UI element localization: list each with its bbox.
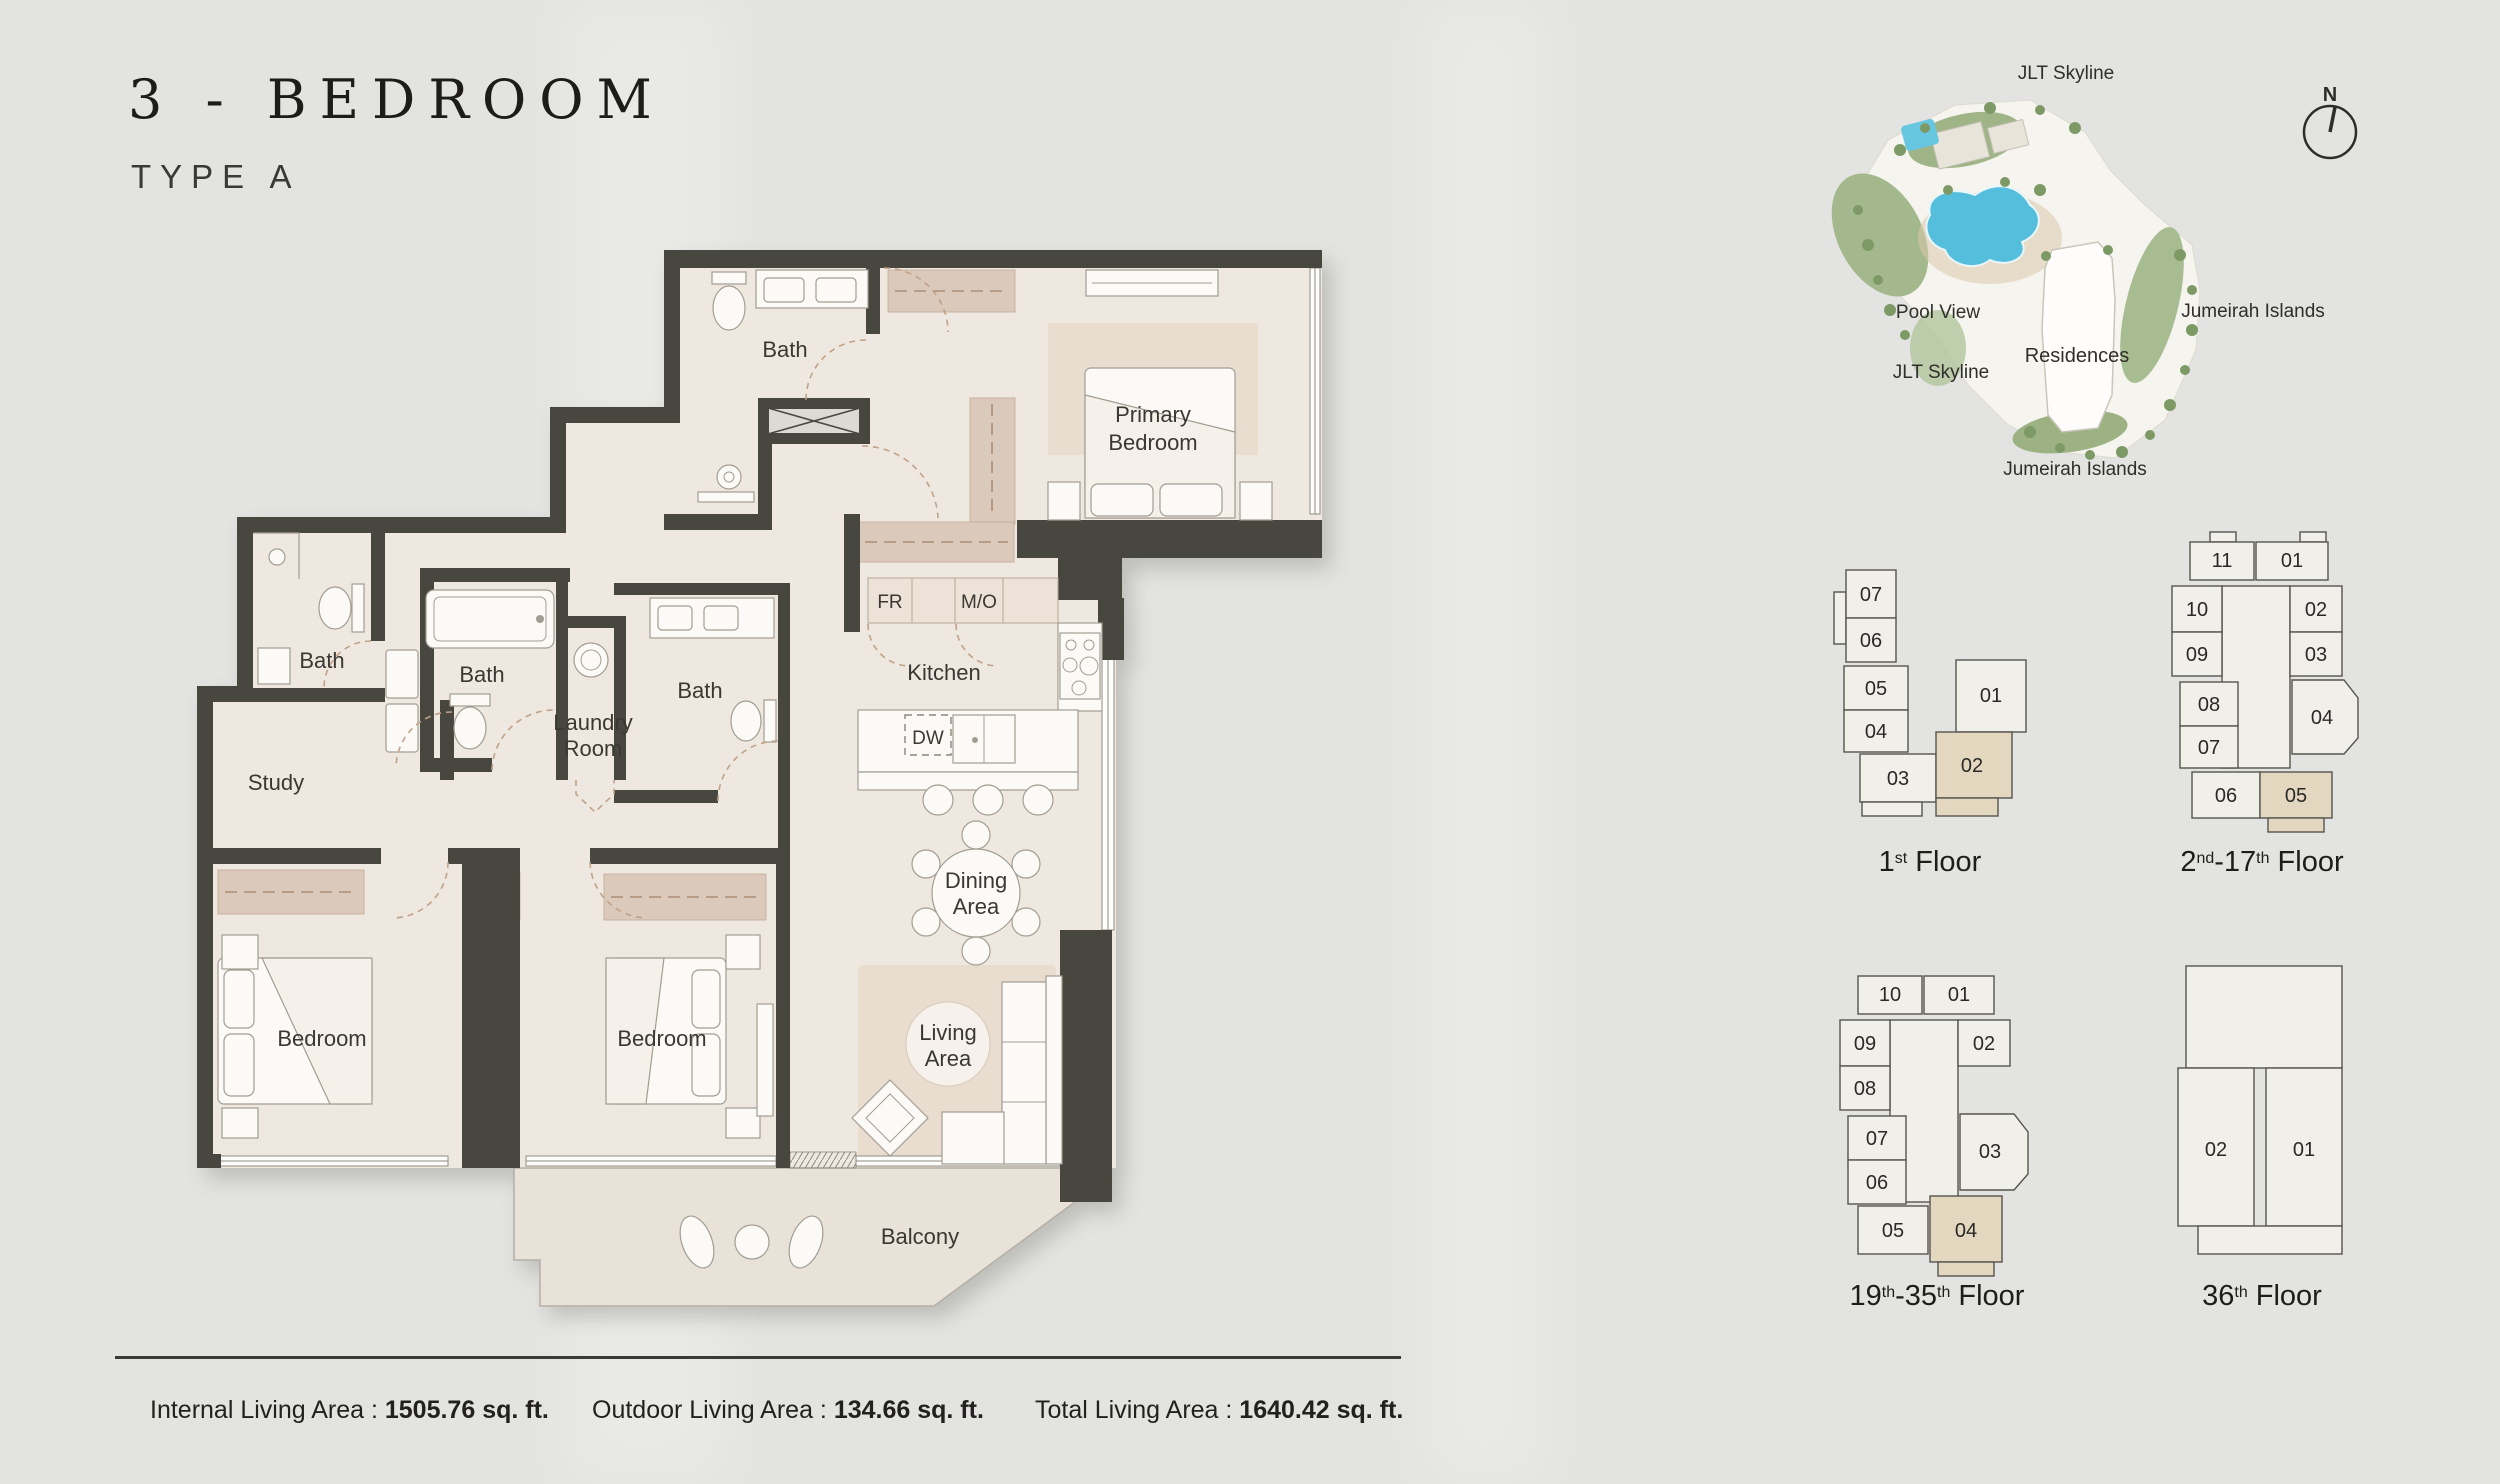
keyplan-36th-floor-label: 36th Floor bbox=[2202, 1280, 2322, 1313]
svg-text:02: 02 bbox=[2305, 599, 2327, 621]
svg-text:06: 06 bbox=[1860, 630, 1882, 652]
keyplan-19th-35th-floor-label: 19th-35th Floor bbox=[1850, 1280, 2025, 1313]
svg-text:10: 10 bbox=[2186, 599, 2208, 621]
room-label-bedroom-left: Bedroom bbox=[277, 1026, 366, 1051]
svg-text:03: 03 bbox=[1887, 768, 1909, 790]
room-label-dining-1: Dining bbox=[945, 868, 1007, 893]
site-label-skyline-left: JLT Skyline bbox=[1893, 362, 1989, 383]
shaft bbox=[768, 408, 860, 434]
svg-text:03: 03 bbox=[2305, 644, 2327, 666]
svg-text:10: 10 bbox=[1879, 984, 1901, 1006]
keyplan-2nd-17th-floor: 11 01 10 02 09 03 08 04 07 06 05 bbox=[2172, 532, 2358, 832]
svg-text:06: 06 bbox=[2215, 785, 2237, 807]
svg-text:05: 05 bbox=[1882, 1220, 1904, 1242]
svg-text:09: 09 bbox=[1854, 1033, 1876, 1055]
svg-text:02: 02 bbox=[1973, 1033, 1995, 1055]
keyplan-2nd-17th-floor-label: 2nd-17th Floor bbox=[2180, 846, 2343, 879]
room-label-study: Study bbox=[248, 770, 304, 795]
background-band bbox=[1420, 0, 1550, 1484]
svg-text:08: 08 bbox=[2198, 694, 2220, 716]
room-label-living-2: Area bbox=[925, 1046, 972, 1071]
svg-text:04: 04 bbox=[1865, 721, 1887, 743]
room-label-microwave-oven: M/O bbox=[961, 592, 997, 613]
svg-text:04: 04 bbox=[2311, 707, 2333, 729]
svg-text:04: 04 bbox=[1955, 1220, 1977, 1242]
keyplan-1st-floor-label: 1st Floor bbox=[1879, 846, 1982, 879]
svg-text:11: 11 bbox=[2212, 550, 2233, 572]
room-label-bath-right: Bath bbox=[677, 678, 722, 703]
site-label-skyline-top: JLT Skyline bbox=[2018, 63, 2114, 84]
page-title: 3 - BEDROOM bbox=[128, 68, 665, 131]
room-label-primary-2: Bedroom bbox=[1108, 430, 1197, 455]
accordion-window bbox=[790, 1152, 856, 1168]
svg-text:07: 07 bbox=[1860, 584, 1882, 606]
stat-internal-living-area: Internal Living Area : 1505.76 sq. ft. bbox=[150, 1396, 549, 1425]
svg-text:02: 02 bbox=[2205, 1139, 2227, 1161]
svg-text:02: 02 bbox=[1961, 755, 1983, 777]
site-label-residences: Residences bbox=[2025, 345, 2130, 367]
keyplan-1st-floor: 07 06 05 04 03 02 01 bbox=[1834, 570, 2026, 816]
room-label-bedroom-right: Bedroom bbox=[617, 1026, 706, 1051]
room-label-dining-2: Area bbox=[953, 894, 1000, 919]
room-label-bath-top: Bath bbox=[762, 337, 807, 362]
room-label-primary-1: Primary bbox=[1115, 402, 1191, 427]
stat-total-living-area: Total Living Area : 1640.42 sq. ft. bbox=[1035, 1396, 1403, 1425]
site-label-islands-bottom: Jumeirah Islands bbox=[2003, 459, 2147, 480]
svg-text:01: 01 bbox=[1980, 685, 2002, 707]
room-label-living-1: Living bbox=[919, 1020, 976, 1045]
svg-text:01: 01 bbox=[2281, 550, 2303, 572]
compass-icon: N bbox=[2304, 84, 2356, 158]
residences-building bbox=[2042, 242, 2115, 432]
site-label-islands-right: Jumeirah Islands bbox=[2181, 301, 2325, 322]
room-label-bath-center: Bath bbox=[459, 662, 504, 687]
room-label-laundry-1: Laundry bbox=[553, 710, 633, 735]
svg-text:06: 06 bbox=[1866, 1172, 1888, 1194]
compass-north-label: N bbox=[2323, 84, 2337, 106]
svg-text:09: 09 bbox=[2186, 644, 2208, 666]
site-land bbox=[1812, 100, 2200, 460]
room-label-balcony: Balcony bbox=[881, 1224, 959, 1249]
svg-text:03: 03 bbox=[1979, 1141, 2001, 1163]
room-label-laundry-2: Room bbox=[564, 736, 623, 761]
keyplan-19th-35th-floor: 10 01 09 02 08 07 03 06 05 04 bbox=[1840, 976, 2028, 1276]
room-label-bath-left: Bath bbox=[299, 648, 344, 673]
svg-text:08: 08 bbox=[1854, 1078, 1876, 1100]
site-map: N JLT Skyline Pool View Jumeirah Islands… bbox=[1830, 40, 2410, 510]
svg-text:07: 07 bbox=[2198, 737, 2220, 759]
room-label-dishwasher: DW bbox=[912, 728, 944, 749]
svg-text:01: 01 bbox=[2293, 1139, 2315, 1161]
stat-outdoor-living-area: Outdoor Living Area : 134.66 sq. ft. bbox=[592, 1396, 984, 1425]
site-label-pool-view: Pool View bbox=[1896, 302, 1980, 323]
floor-plan: Bath Primary Bedroom Bath Bath Bath Laun… bbox=[100, 140, 1420, 1370]
svg-text:05: 05 bbox=[2285, 785, 2307, 807]
svg-text:05: 05 bbox=[1865, 678, 1887, 700]
divider-line bbox=[115, 1356, 1401, 1359]
keyplan-36th-floor: 02 01 bbox=[2178, 966, 2342, 1254]
svg-text:01: 01 bbox=[1948, 984, 1970, 1006]
key-plans: 07 06 05 04 03 02 01 11 01 10 02 09 03 0… bbox=[1820, 520, 2390, 1300]
svg-text:07: 07 bbox=[1866, 1128, 1888, 1150]
room-label-kitchen: Kitchen bbox=[907, 660, 980, 685]
room-label-fridge: FR bbox=[877, 592, 902, 613]
